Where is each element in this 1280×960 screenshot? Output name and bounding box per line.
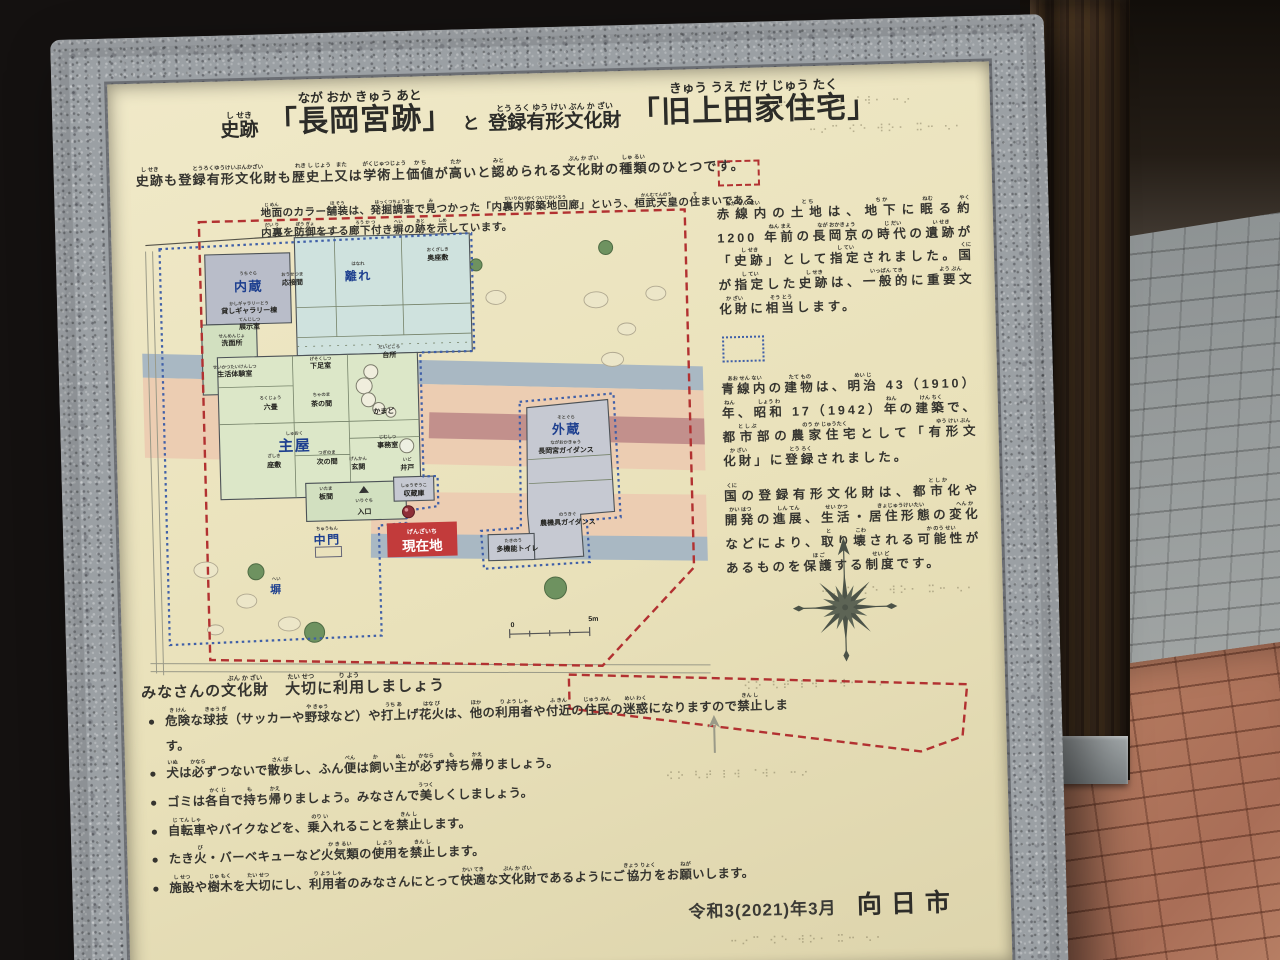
- sign-panel: 史跡し せき 「長岡宮跡なが おか きゅう あと」 と 登録有形文化財とう ろく…: [107, 61, 1012, 960]
- map-label-ido: 井戸: [400, 463, 414, 472]
- map-label-zashiki: 座敷: [267, 460, 282, 469]
- braille-dots: ⠒⠔⠉ ⠪⠑ ⠺⠕⠂ ⠭⠒ ⠢⠂: [730, 931, 887, 948]
- map-label-genkan: 玄関: [351, 462, 365, 471]
- scale-zero: 0: [510, 622, 514, 629]
- title-connector: と: [462, 109, 480, 136]
- title-shiseki: 史跡し せき: [220, 111, 259, 143]
- bullet-icon: ●: [136, 818, 158, 846]
- bullet-icon: ●: [134, 708, 156, 736]
- footer-date: 令和3(2021)年3月: [688, 899, 837, 922]
- map-ruby-hei: へい: [272, 576, 282, 582]
- blue-boundary-key-icon: [722, 335, 765, 362]
- well-circle: [400, 439, 414, 453]
- bullet-icon: ●: [136, 789, 158, 817]
- map-label-genzaichi: 現在地: [402, 537, 443, 554]
- map-label-hei: 塀: [270, 582, 283, 596]
- red-boundary-key-icon: [717, 159, 760, 186]
- photo-of-information-sign: 史跡し せき 「長岡宮跡なが おか きゅう あと」 と 登録有形文化財とう ろく…: [0, 0, 1280, 960]
- bullet-icon: ●: [135, 761, 157, 789]
- sign-footer: 令和3(2021)年3月 向日市: [688, 883, 959, 926]
- map-label-shuoku: 主屋: [278, 436, 311, 455]
- map-label-iriguchi: 入口: [356, 508, 371, 516]
- scale-five-m: 5m: [588, 616, 598, 623]
- map-label-sotogura: 外蔵: [551, 421, 581, 437]
- site-map: うちぐら 内蔵 かしギャラリーとう 貸しギャラリー棟 てんじしつ 展示室 おうせ…: [139, 197, 711, 691]
- braille-dots: ⠒⠔⠉ ⠪⠑ ⠺⠕⠂ ⠭⠒ ⠢⠂: [808, 120, 965, 137]
- usage-rules: みなさんの文化財ぶん か ざい 大切たい せつに利用り ようしましょう ● 危険…: [133, 661, 809, 905]
- bullet-icon: ●: [137, 847, 159, 875]
- map-label-hanare: 離れ: [345, 268, 372, 284]
- legend-blue-text-1: 青線内あお せん ないの建物たて ものは、明治めい じ 43（1910）年ねん、…: [721, 370, 979, 474]
- title-nagaokakyu-ato: 「長岡宮跡なが おか きゅう あと」: [266, 87, 453, 141]
- map-scale-bar: 0 5m: [509, 616, 599, 638]
- map-label-daidokoro: 台所: [382, 350, 396, 359]
- map-label-chumon: 中門: [313, 532, 340, 548]
- footer-city-name: 向日市: [857, 889, 960, 920]
- braille-dots: ⠒⠔⠉ ⠪⠑ ⠺⠕⠂ ⠭⠒ ⠢⠂: [821, 582, 978, 599]
- map-label-rokujo: 六畳: [264, 402, 278, 411]
- map-ruby-chumon: ちゅうもん: [316, 525, 339, 533]
- sign-subtitle: 史跡し せきも登録有形文化財とうろくゆうけいぶんかざいも歴史上れき し じょう又…: [135, 152, 745, 190]
- map-label-uchigura: 内蔵: [234, 279, 263, 295]
- title-toroku-yukei-bunkazai: 登録有形文化財とう ろく ゆう けい ぶん か ざい: [488, 101, 622, 135]
- chumon-gate: [315, 547, 341, 558]
- map-label-itama: 板間: [319, 492, 333, 501]
- stone-frame: 史跡し せき 「長岡宮跡なが おか きゅう あと」 と 登録有形文化財とう ろく…: [50, 14, 1070, 960]
- bullet-icon: ●: [138, 875, 160, 903]
- compass-rose-icon: [787, 532, 903, 673]
